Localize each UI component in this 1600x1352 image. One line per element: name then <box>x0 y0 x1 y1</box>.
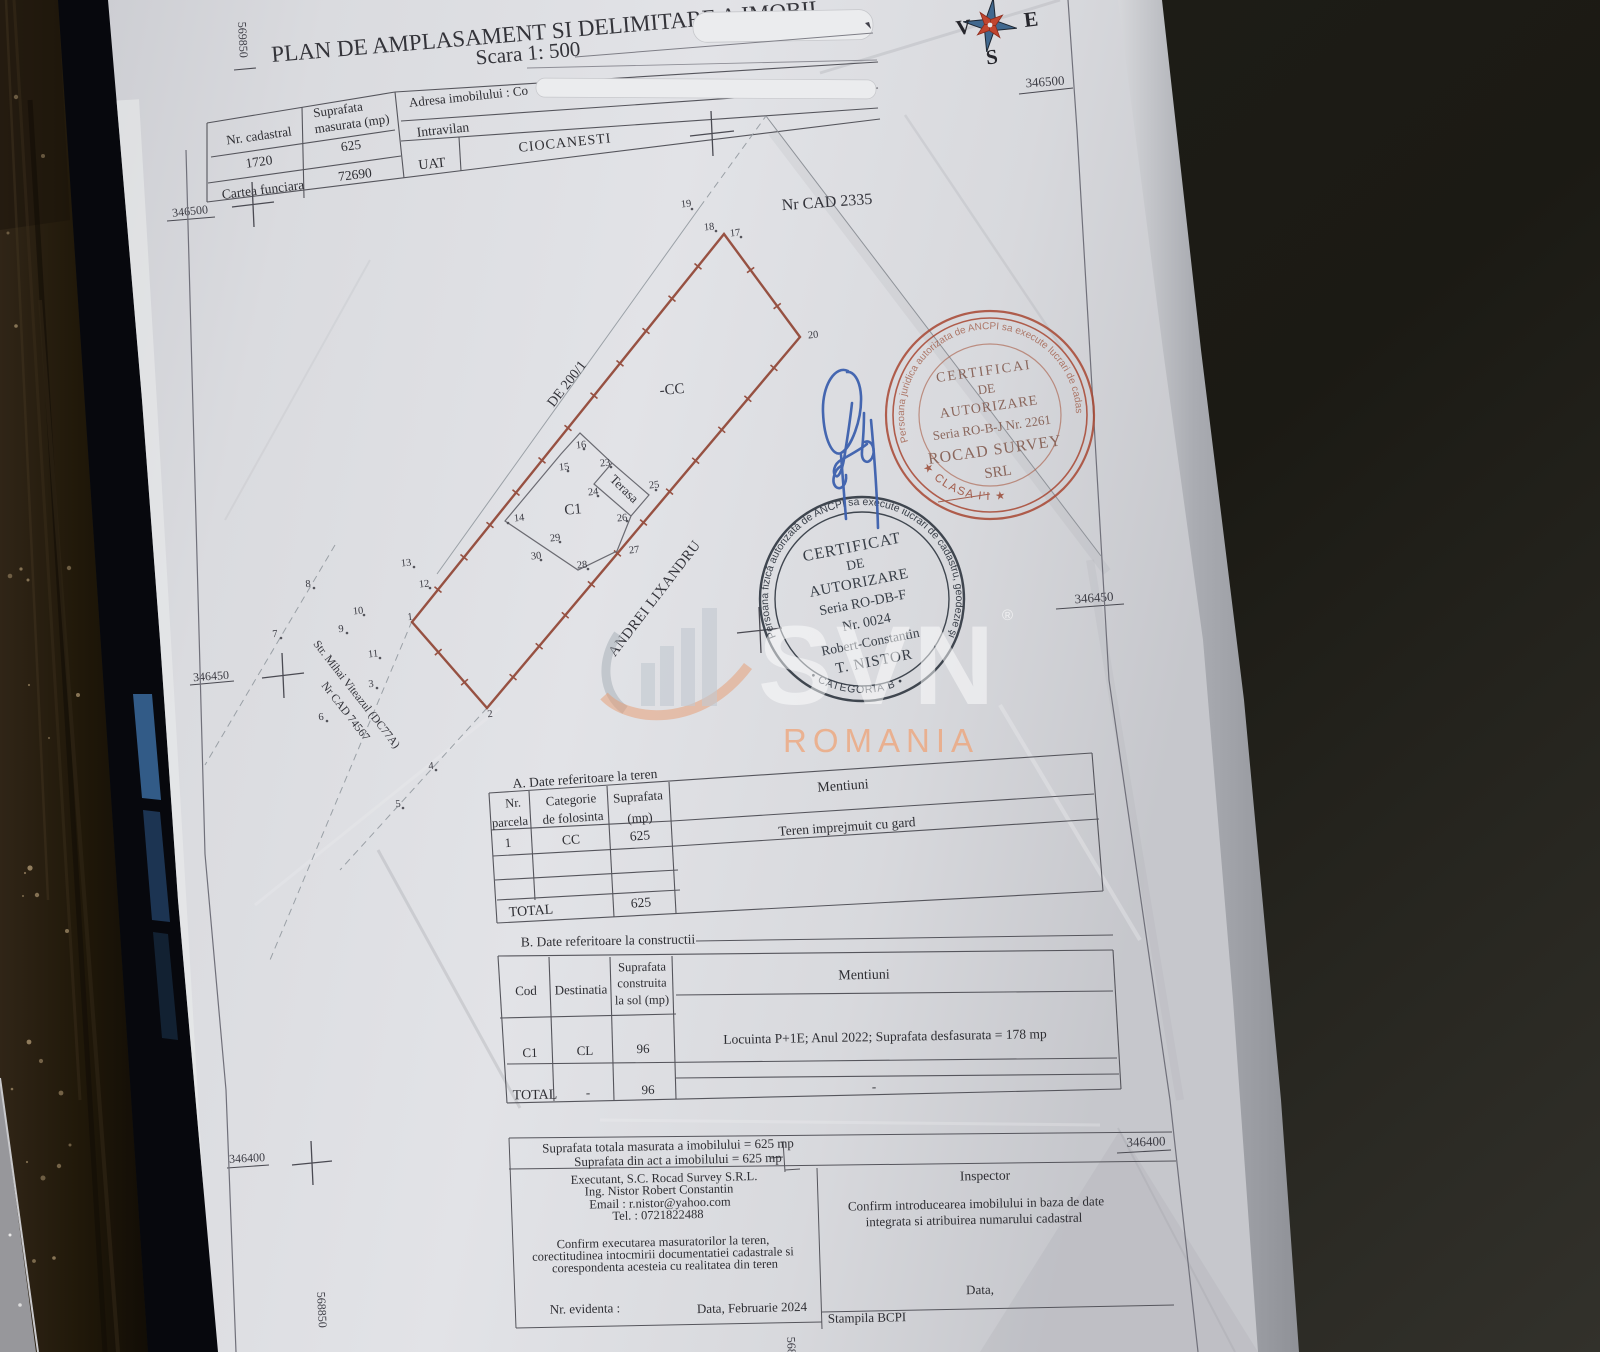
svg-text:568900: 568900 <box>784 1336 800 1352</box>
svg-text:23: 23 <box>599 457 611 469</box>
svg-text:Tel. : 0721822488: Tel. : 0721822488 <box>612 1207 703 1223</box>
svg-text:346400: 346400 <box>1126 1133 1165 1149</box>
svg-text:CC: CC <box>561 831 580 847</box>
svg-text:ROMANIA: ROMANIA <box>783 722 979 759</box>
svg-text:27: 27 <box>628 544 640 556</box>
svg-text:-: - <box>872 1079 877 1094</box>
svg-text:Data,: Data, <box>966 1282 994 1298</box>
svg-text:Inspector: Inspector <box>960 1167 1011 1183</box>
svg-text:14: 14 <box>513 512 525 524</box>
svg-text:96: 96 <box>636 1041 650 1056</box>
svg-text:Mentiuni: Mentiuni <box>838 968 890 984</box>
svg-text:(mp): (mp) <box>627 809 653 826</box>
svg-text:Nr.: Nr. <box>505 795 522 810</box>
svg-text:11: 11 <box>368 648 379 660</box>
svg-text:28: 28 <box>576 559 588 571</box>
svg-text:Data, Februarie 2024: Data, Februarie 2024 <box>697 1299 808 1316</box>
svg-text:C1: C1 <box>564 501 583 518</box>
svg-text:B. Date referitoare la constru: B. Date referitoare la constructii <box>521 931 696 949</box>
svg-text:V: V <box>955 14 973 40</box>
svg-text:26: 26 <box>616 512 628 524</box>
svg-text:17: 17 <box>729 227 741 239</box>
svg-text:1: 1 <box>504 835 512 850</box>
svg-text:569850: 569850 <box>235 21 251 58</box>
svg-text:13: 13 <box>400 557 412 569</box>
svg-text:C1: C1 <box>522 1045 537 1060</box>
svg-text:10: 10 <box>352 605 364 617</box>
svg-text:625: 625 <box>629 827 650 843</box>
svg-text:346450: 346450 <box>1074 589 1114 607</box>
svg-text:Suprafata: Suprafata <box>618 960 667 975</box>
svg-text:12: 12 <box>418 578 430 590</box>
svg-text:parcela: parcela <box>492 814 529 831</box>
svg-text:E: E <box>1023 6 1040 32</box>
svg-text:625: 625 <box>630 894 651 910</box>
svg-text:346400: 346400 <box>229 1150 266 1166</box>
svg-text:19: 19 <box>680 198 692 210</box>
svg-text:Destinatia: Destinatia <box>555 982 608 998</box>
svg-text:346500: 346500 <box>1025 73 1065 91</box>
svg-text:Stampila BCPI: Stampila BCPI <box>828 1309 907 1326</box>
svg-text:18: 18 <box>703 221 715 233</box>
svg-text:TOTAL: TOTAL <box>508 902 553 920</box>
svg-text:-: - <box>586 1085 591 1100</box>
svg-text:-CC: -CC <box>659 381 685 399</box>
svg-text:25: 25 <box>648 479 660 491</box>
svg-text:TOTAL: TOTAL <box>513 1088 558 1104</box>
svg-text:625: 625 <box>340 137 362 155</box>
svg-text:la sol (mp): la sol (mp) <box>615 993 669 1008</box>
svg-text:CL: CL <box>577 1043 594 1058</box>
svg-text:20: 20 <box>807 329 819 341</box>
svg-text:®: ® <box>1002 607 1013 624</box>
svg-text:Nr. evidenta :: Nr. evidenta : <box>550 1300 621 1316</box>
svg-text:16: 16 <box>575 439 587 451</box>
svg-text:DE: DE <box>977 380 996 397</box>
svg-text:SVN: SVN <box>758 603 997 728</box>
svg-text:Cod: Cod <box>515 983 537 998</box>
svg-text:UAT: UAT <box>418 156 447 174</box>
svg-text:96: 96 <box>641 1082 655 1097</box>
svg-text:568850: 568850 <box>314 1291 330 1328</box>
svg-text:construita: construita <box>617 976 667 991</box>
